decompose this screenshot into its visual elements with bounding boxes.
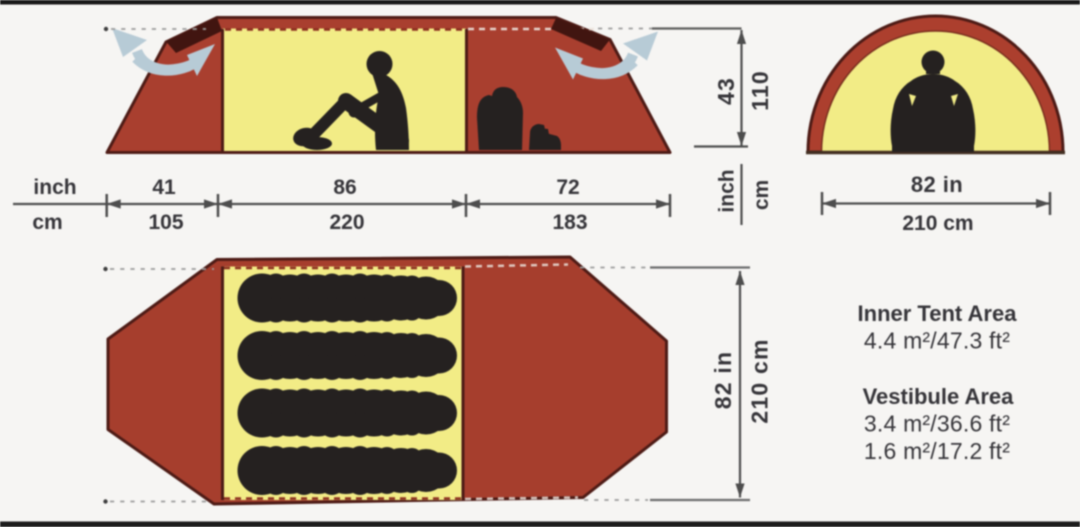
svg-text:220: 220 [329,211,364,234]
svg-text:inch: inch [33,176,76,199]
svg-text:Inner Tent Area: Inner Tent Area [858,301,1018,326]
svg-text:210 cm: 210 cm [902,212,973,235]
svg-text:82 in: 82 in [710,351,736,409]
svg-text:86: 86 [333,176,356,199]
svg-text:43: 43 [713,77,739,105]
svg-text:183: 183 [552,211,587,234]
svg-text:41: 41 [152,176,176,199]
svg-text:72: 72 [556,176,579,199]
svg-text:3.4 m²/36.6 ft²: 3.4 m²/36.6 ft² [864,411,1010,437]
svg-text:4.4 m²/47.3 ft²: 4.4 m²/47.3 ft² [864,328,1010,354]
svg-text:Vestibule Area: Vestibule Area [863,384,1015,409]
svg-text:82 in: 82 in [911,172,963,197]
svg-text:1.6 m²/17.2 ft²: 1.6 m²/17.2 ft² [864,438,1010,464]
svg-text:210 cm: 210 cm [747,338,773,423]
svg-text:105: 105 [148,211,183,234]
svg-text:cm: cm [750,180,773,210]
svg-text:inch: inch [716,169,739,212]
svg-text:cm: cm [32,211,62,234]
svg-text:110: 110 [747,70,773,111]
